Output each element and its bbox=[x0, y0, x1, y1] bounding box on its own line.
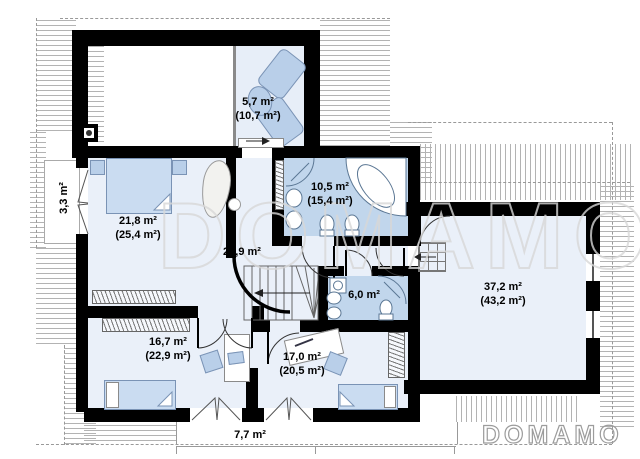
roof-hatch bbox=[84, 425, 176, 444]
wardrobe bbox=[92, 290, 176, 304]
wall bbox=[242, 408, 264, 422]
area-total-value: (20,5 m²) bbox=[279, 364, 324, 378]
label-bedroom-left: 16,7 m² (22,9 m²) bbox=[145, 335, 190, 363]
label-left-balcony: 3,3 m² bbox=[57, 182, 71, 214]
wall bbox=[313, 408, 420, 422]
watermark: DOMAMO bbox=[158, 182, 640, 290]
wardrobe bbox=[388, 332, 405, 378]
wall bbox=[404, 380, 600, 394]
label-master-bedroom: 21,8 m² (25,4 m²) bbox=[115, 214, 160, 242]
area-value: 5,7 m² bbox=[235, 95, 280, 109]
brand-logo: DOMAMO bbox=[482, 421, 623, 450]
pillow bbox=[384, 386, 396, 408]
floor-plan-sheet: DOMAMO DOMAMO 5,7 m² (10,7 m²) 3,3 m² 21… bbox=[0, 0, 640, 459]
area-total-value: (10,7 m²) bbox=[235, 109, 280, 123]
label-large-room: 37,2 m² (43,2 m²) bbox=[480, 280, 525, 308]
area-value: 16,7 m² bbox=[145, 335, 190, 349]
wardrobe bbox=[102, 318, 190, 332]
balcony-railing bbox=[176, 446, 456, 454]
label-bedroom-right: 17,0 m² (20,5 m²) bbox=[279, 350, 324, 378]
area-value: 6,0 m² bbox=[348, 288, 380, 302]
wall bbox=[84, 408, 190, 422]
nightstand bbox=[90, 160, 105, 175]
wall bbox=[84, 306, 198, 318]
area-value: 21,8 m² bbox=[115, 214, 160, 228]
area-value: 37,2 m² bbox=[480, 280, 525, 294]
chimney-pipe-icon bbox=[86, 130, 92, 136]
wall bbox=[264, 320, 270, 332]
roof-outline-dashed-top bbox=[60, 18, 390, 20]
area-total-value: (15,4 m²) bbox=[307, 194, 352, 208]
pillow bbox=[106, 382, 119, 408]
area-value: 3,3 m² bbox=[57, 182, 71, 214]
area-total-value: (22,9 m²) bbox=[145, 349, 190, 363]
roof-outline-dashed-left-lower bbox=[64, 345, 66, 445]
wall bbox=[304, 30, 320, 158]
console-table bbox=[238, 138, 284, 148]
window bbox=[586, 310, 600, 339]
roof-hatch bbox=[36, 20, 76, 132]
nightstand bbox=[172, 160, 187, 175]
area-total-value: (43,2 m²) bbox=[480, 294, 525, 308]
label-small-bathroom: 6,0 m² bbox=[348, 288, 380, 302]
label-upper-loggia: 5,7 m² (10,7 m²) bbox=[235, 95, 280, 123]
label-hall: 22,9 m² bbox=[223, 245, 261, 259]
roof-outline-dashed-top-right bbox=[408, 122, 612, 124]
bottom-balcony-floor bbox=[176, 422, 458, 444]
wall bbox=[300, 320, 420, 332]
wall bbox=[252, 306, 264, 332]
wall bbox=[72, 30, 320, 46]
roof-outline-dashed-left bbox=[36, 18, 38, 248]
wall bbox=[272, 146, 420, 158]
area-value: 7,7 m² bbox=[234, 428, 266, 442]
roof-hatch bbox=[320, 20, 390, 146]
area-value: 17,0 m² bbox=[279, 350, 324, 364]
wall bbox=[76, 234, 88, 412]
label-bottom-balcony: 7,7 m² bbox=[234, 428, 266, 442]
label-main-bathroom: 10,5 m² (15,4 m²) bbox=[307, 180, 352, 208]
area-value: 22,9 m² bbox=[223, 245, 261, 259]
wall bbox=[76, 146, 88, 168]
area-value: 10,5 m² bbox=[307, 180, 352, 194]
laptop-icon bbox=[227, 351, 245, 365]
roof-hatch bbox=[456, 396, 578, 422]
area-total-value: (25,4 m²) bbox=[115, 228, 160, 242]
wall bbox=[72, 146, 242, 158]
